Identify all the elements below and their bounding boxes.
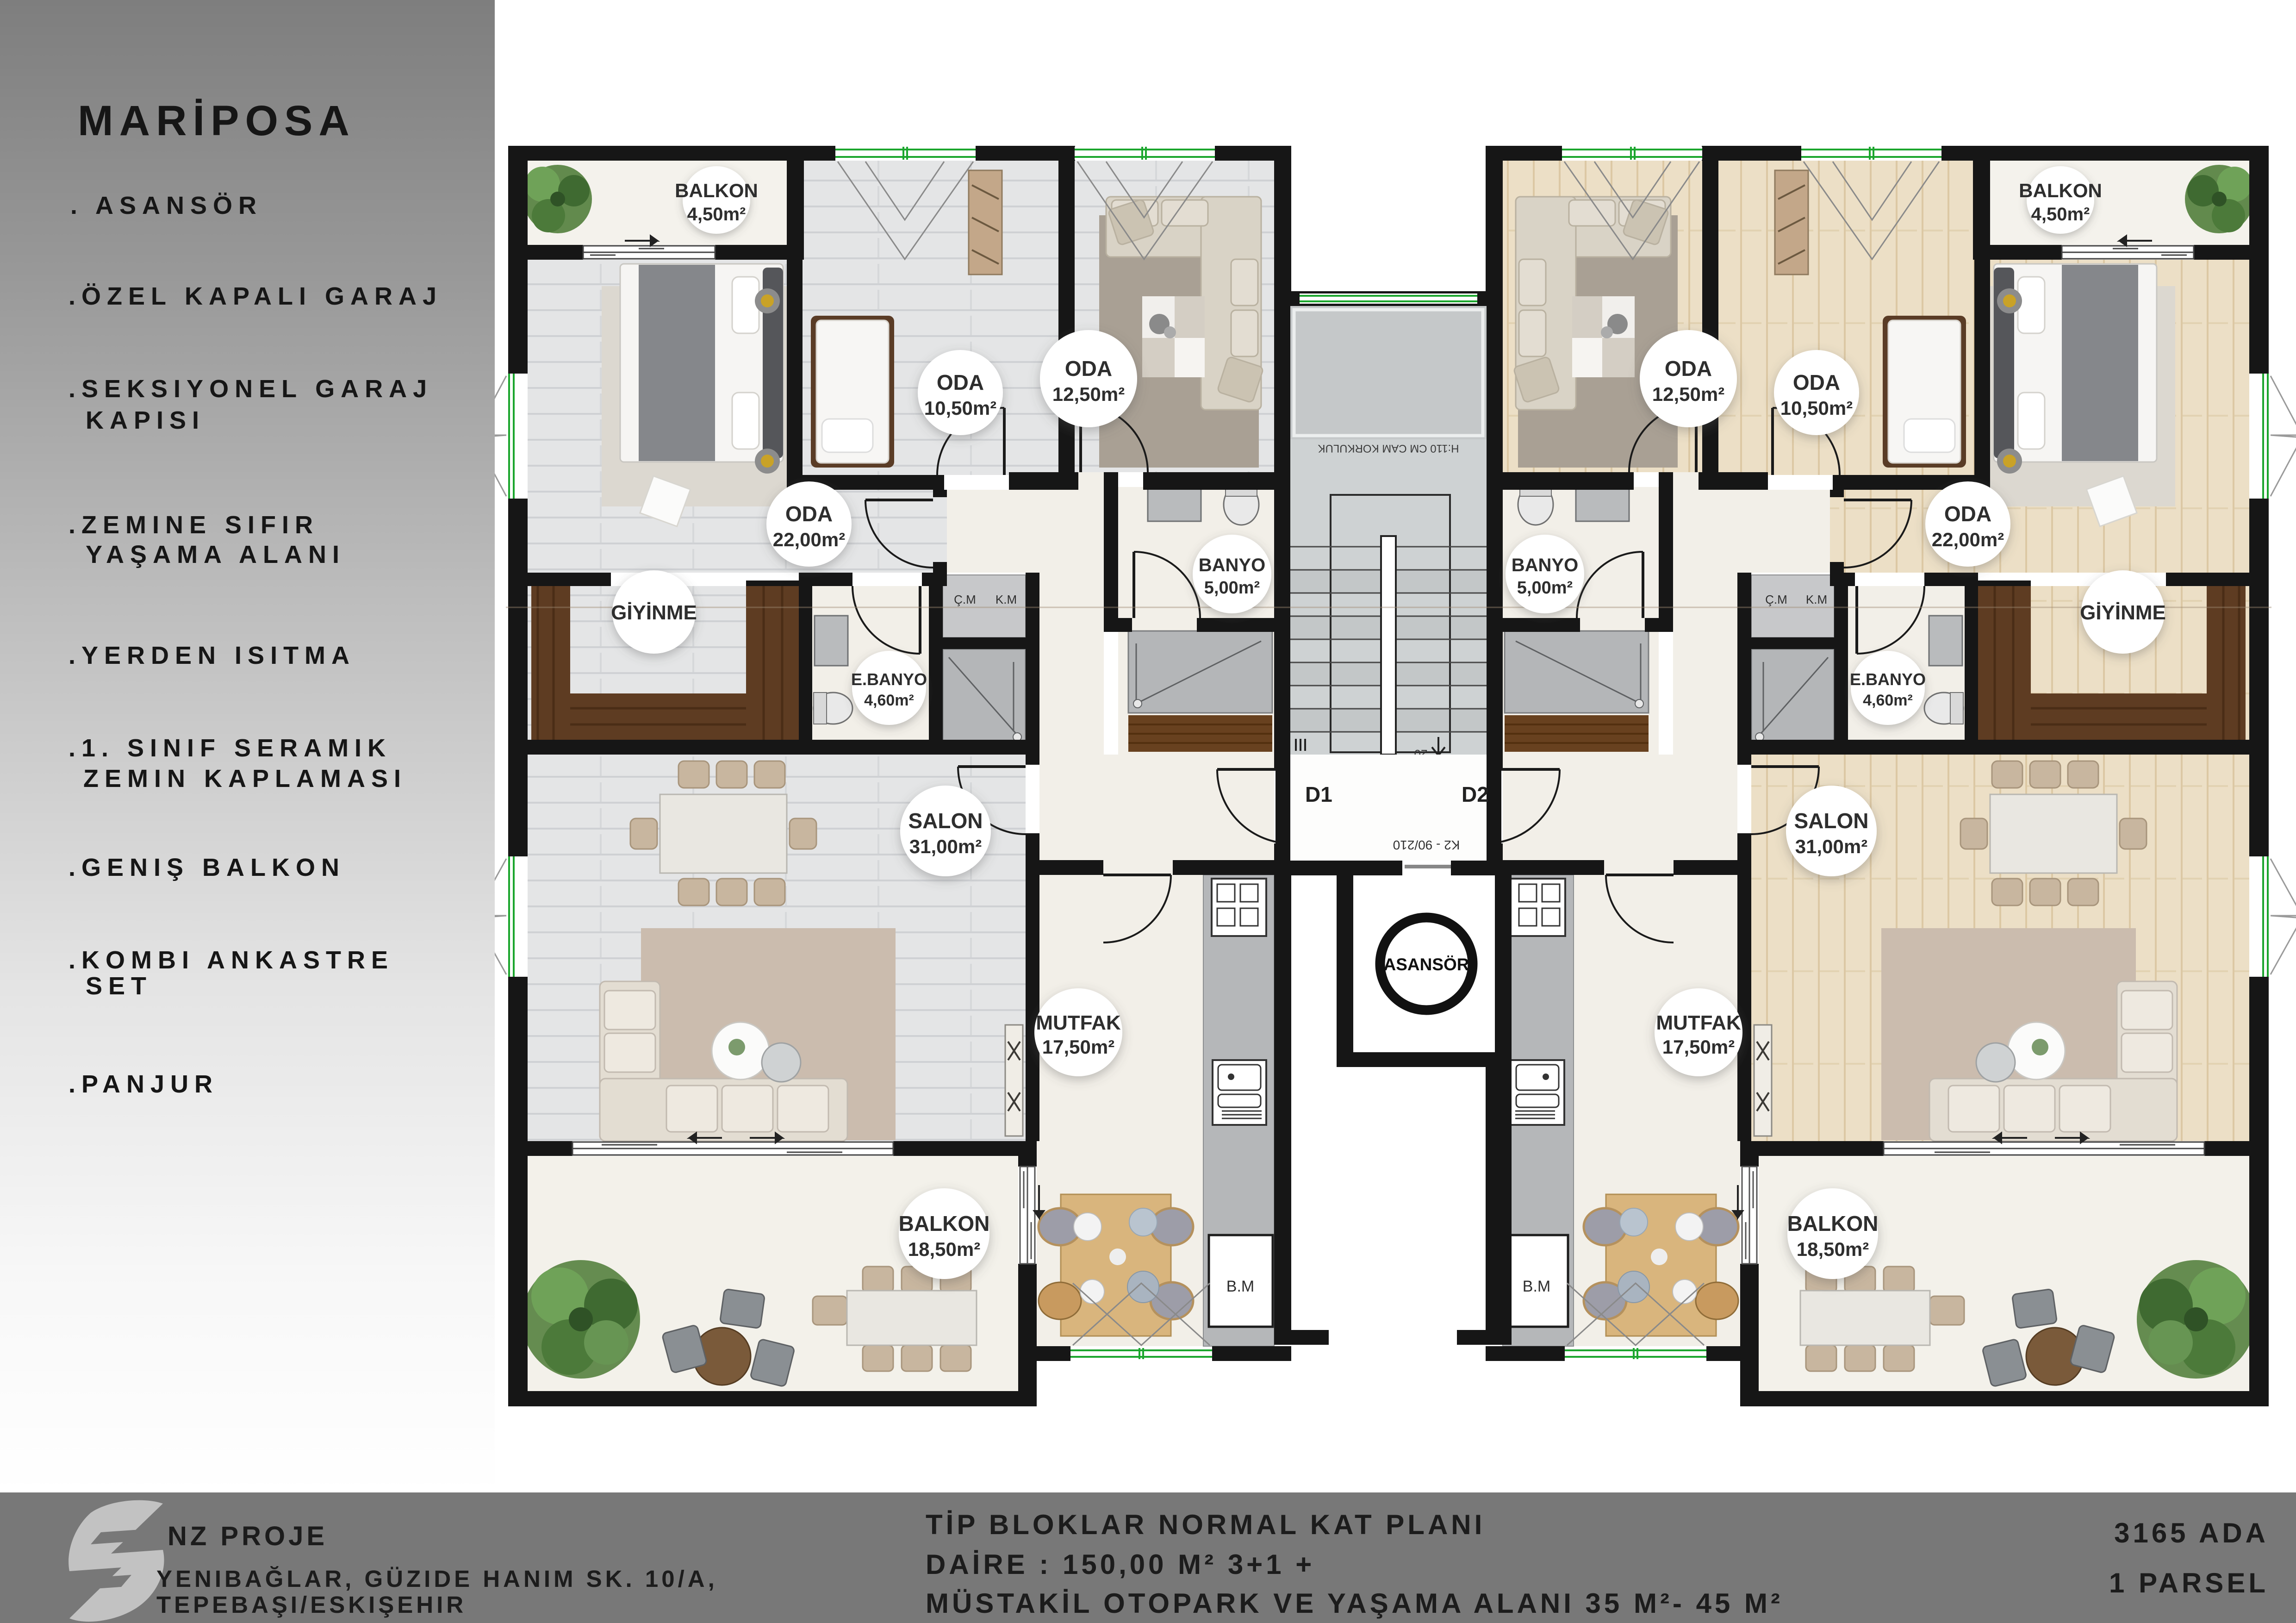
svg-text:D2: D2	[1462, 782, 1489, 806]
svg-text:K.M: K.M	[1806, 593, 1827, 606]
svg-text:K.M: K.M	[996, 593, 1017, 606]
svg-text:B.M: B.M	[1226, 1278, 1254, 1295]
svg-text:DAİRE : 150,00 M² 3+1 +: DAİRE : 150,00 M² 3+1 +	[926, 1549, 1315, 1580]
svg-text:.PANJUR: .PANJUR	[68, 1070, 218, 1098]
svg-text:31,00m²: 31,00m²	[1795, 836, 1867, 857]
svg-text:MUTFAK: MUTFAK	[1656, 1011, 1741, 1034]
svg-text:17,50m²: 17,50m²	[1042, 1036, 1114, 1058]
svg-text:BALKON: BALKON	[675, 180, 758, 201]
svg-text:10,50m²: 10,50m²	[924, 397, 996, 419]
svg-text:TEPEBAŞI/ESKIŞEHIR: TEPEBAŞI/ESKIŞEHIR	[156, 1592, 467, 1618]
svg-text:BANYO: BANYO	[1199, 555, 1265, 575]
svg-text:NZ PROJE: NZ PROJE	[168, 1521, 328, 1551]
svg-text:BALKON: BALKON	[2019, 180, 2102, 201]
svg-text:BALKON: BALKON	[1787, 1211, 1879, 1236]
svg-text:3165 ADA: 3165 ADA	[2114, 1517, 2269, 1548]
svg-text:5,00m²: 5,00m²	[1517, 578, 1573, 598]
svg-text:4,50m²: 4,50m²	[2031, 204, 2090, 225]
svg-text:MÜSTAKİL OTOPARK VE YAŞAMA ALA: MÜSTAKİL OTOPARK VE YAŞAMA ALANI 35 M²- …	[926, 1588, 1783, 1619]
svg-text:ZEMIN KAPLAMASI: ZEMIN KAPLAMASI	[83, 765, 407, 793]
svg-text:.ÖZEL KAPALI GARAJ: .ÖZEL KAPALI GARAJ	[68, 282, 442, 310]
svg-text:BALKON: BALKON	[899, 1211, 990, 1236]
svg-text:.SEKSIYONEL GARAJ: .SEKSIYONEL GARAJ	[68, 375, 433, 403]
svg-text:18,50m²: 18,50m²	[1797, 1238, 1869, 1260]
svg-text:BANYO: BANYO	[1512, 555, 1578, 575]
svg-text:ODA: ODA	[1944, 502, 1991, 526]
svg-text:.ZEMINE SIFIR: .ZEMINE SIFIR	[68, 511, 319, 539]
svg-text:18,50m²: 18,50m²	[908, 1238, 980, 1260]
svg-text:TİP BLOKLAR NORMAL KAT PLANI: TİP BLOKLAR NORMAL KAT PLANI	[926, 1509, 1485, 1540]
svg-text:Ç.M: Ç.M	[1765, 593, 1787, 606]
svg-text:ODA: ODA	[1793, 370, 1840, 394]
svg-text:4,60m²: 4,60m²	[1863, 692, 1913, 709]
svg-text:E.BANYO: E.BANYO	[1850, 670, 1926, 689]
svg-text:SALON: SALON	[908, 809, 983, 833]
svg-text:12,50m²: 12,50m²	[1052, 383, 1125, 405]
svg-text:SALON: SALON	[1794, 809, 1869, 833]
svg-text:D1: D1	[1305, 782, 1332, 806]
svg-text:KAPISI: KAPISI	[86, 406, 205, 434]
svg-text:YAŞAMA ALANI: YAŞAMA ALANI	[86, 541, 345, 568]
svg-text:GİYİNME: GİYİNME	[2080, 601, 2166, 624]
svg-text:ODA: ODA	[785, 502, 833, 526]
svg-text:4,60m²: 4,60m²	[864, 692, 914, 709]
svg-text:5,00m²: 5,00m²	[1204, 578, 1260, 598]
svg-text:22,00m²: 22,00m²	[773, 529, 845, 550]
svg-text:.KOMBI ANKASTRE: .KOMBI ANKASTRE	[68, 946, 394, 974]
svg-text:MUTFAK: MUTFAK	[1036, 1011, 1121, 1034]
svg-text:ODA: ODA	[937, 370, 984, 394]
svg-text:ODA: ODA	[1065, 356, 1112, 381]
svg-text:4,50m²: 4,50m²	[687, 204, 746, 225]
svg-text:12,50m²: 12,50m²	[1652, 383, 1724, 405]
svg-text:B.M: B.M	[1523, 1278, 1550, 1295]
svg-text:.YERDEN ISITMA: .YERDEN ISITMA	[68, 642, 355, 669]
svg-text:1 PARSEL: 1 PARSEL	[2109, 1567, 2269, 1598]
svg-text:K2 - 90/210: K2 - 90/210	[1393, 838, 1460, 852]
svg-text:31,00m²: 31,00m²	[909, 836, 982, 857]
svg-text:GİYİNME: GİYİNME	[611, 601, 697, 624]
svg-text:SET: SET	[86, 972, 152, 1000]
svg-text:YENIBAĞLAR, GÜZIDE HANIM SK. 1: YENIBAĞLAR, GÜZIDE HANIM SK. 10/A,	[156, 1566, 718, 1592]
svg-text:10,50m²: 10,50m²	[1780, 397, 1853, 419]
svg-text:.GENIŞ BALKON: .GENIŞ BALKON	[68, 854, 345, 881]
svg-text:.1. SINIF SERAMIK: .1. SINIF SERAMIK	[68, 734, 392, 762]
svg-text:E.BANYO: E.BANYO	[851, 670, 927, 689]
svg-text:H:110 CM CAM KORKULUK: H:110 CM CAM KORKULUK	[1318, 442, 1459, 455]
svg-text:MARİPOSA: MARİPOSA	[78, 97, 355, 144]
svg-text:Ç.M: Ç.M	[954, 593, 976, 606]
svg-text:22,00m²: 22,00m²	[1932, 529, 2004, 550]
svg-text:ODA: ODA	[1665, 356, 1712, 381]
svg-text:. ASANSÖR: . ASANSÖR	[70, 192, 262, 219]
svg-text:17,50m²: 17,50m²	[1662, 1036, 1735, 1058]
svg-text:ASANSÖR: ASANSÖR	[1383, 955, 1469, 974]
